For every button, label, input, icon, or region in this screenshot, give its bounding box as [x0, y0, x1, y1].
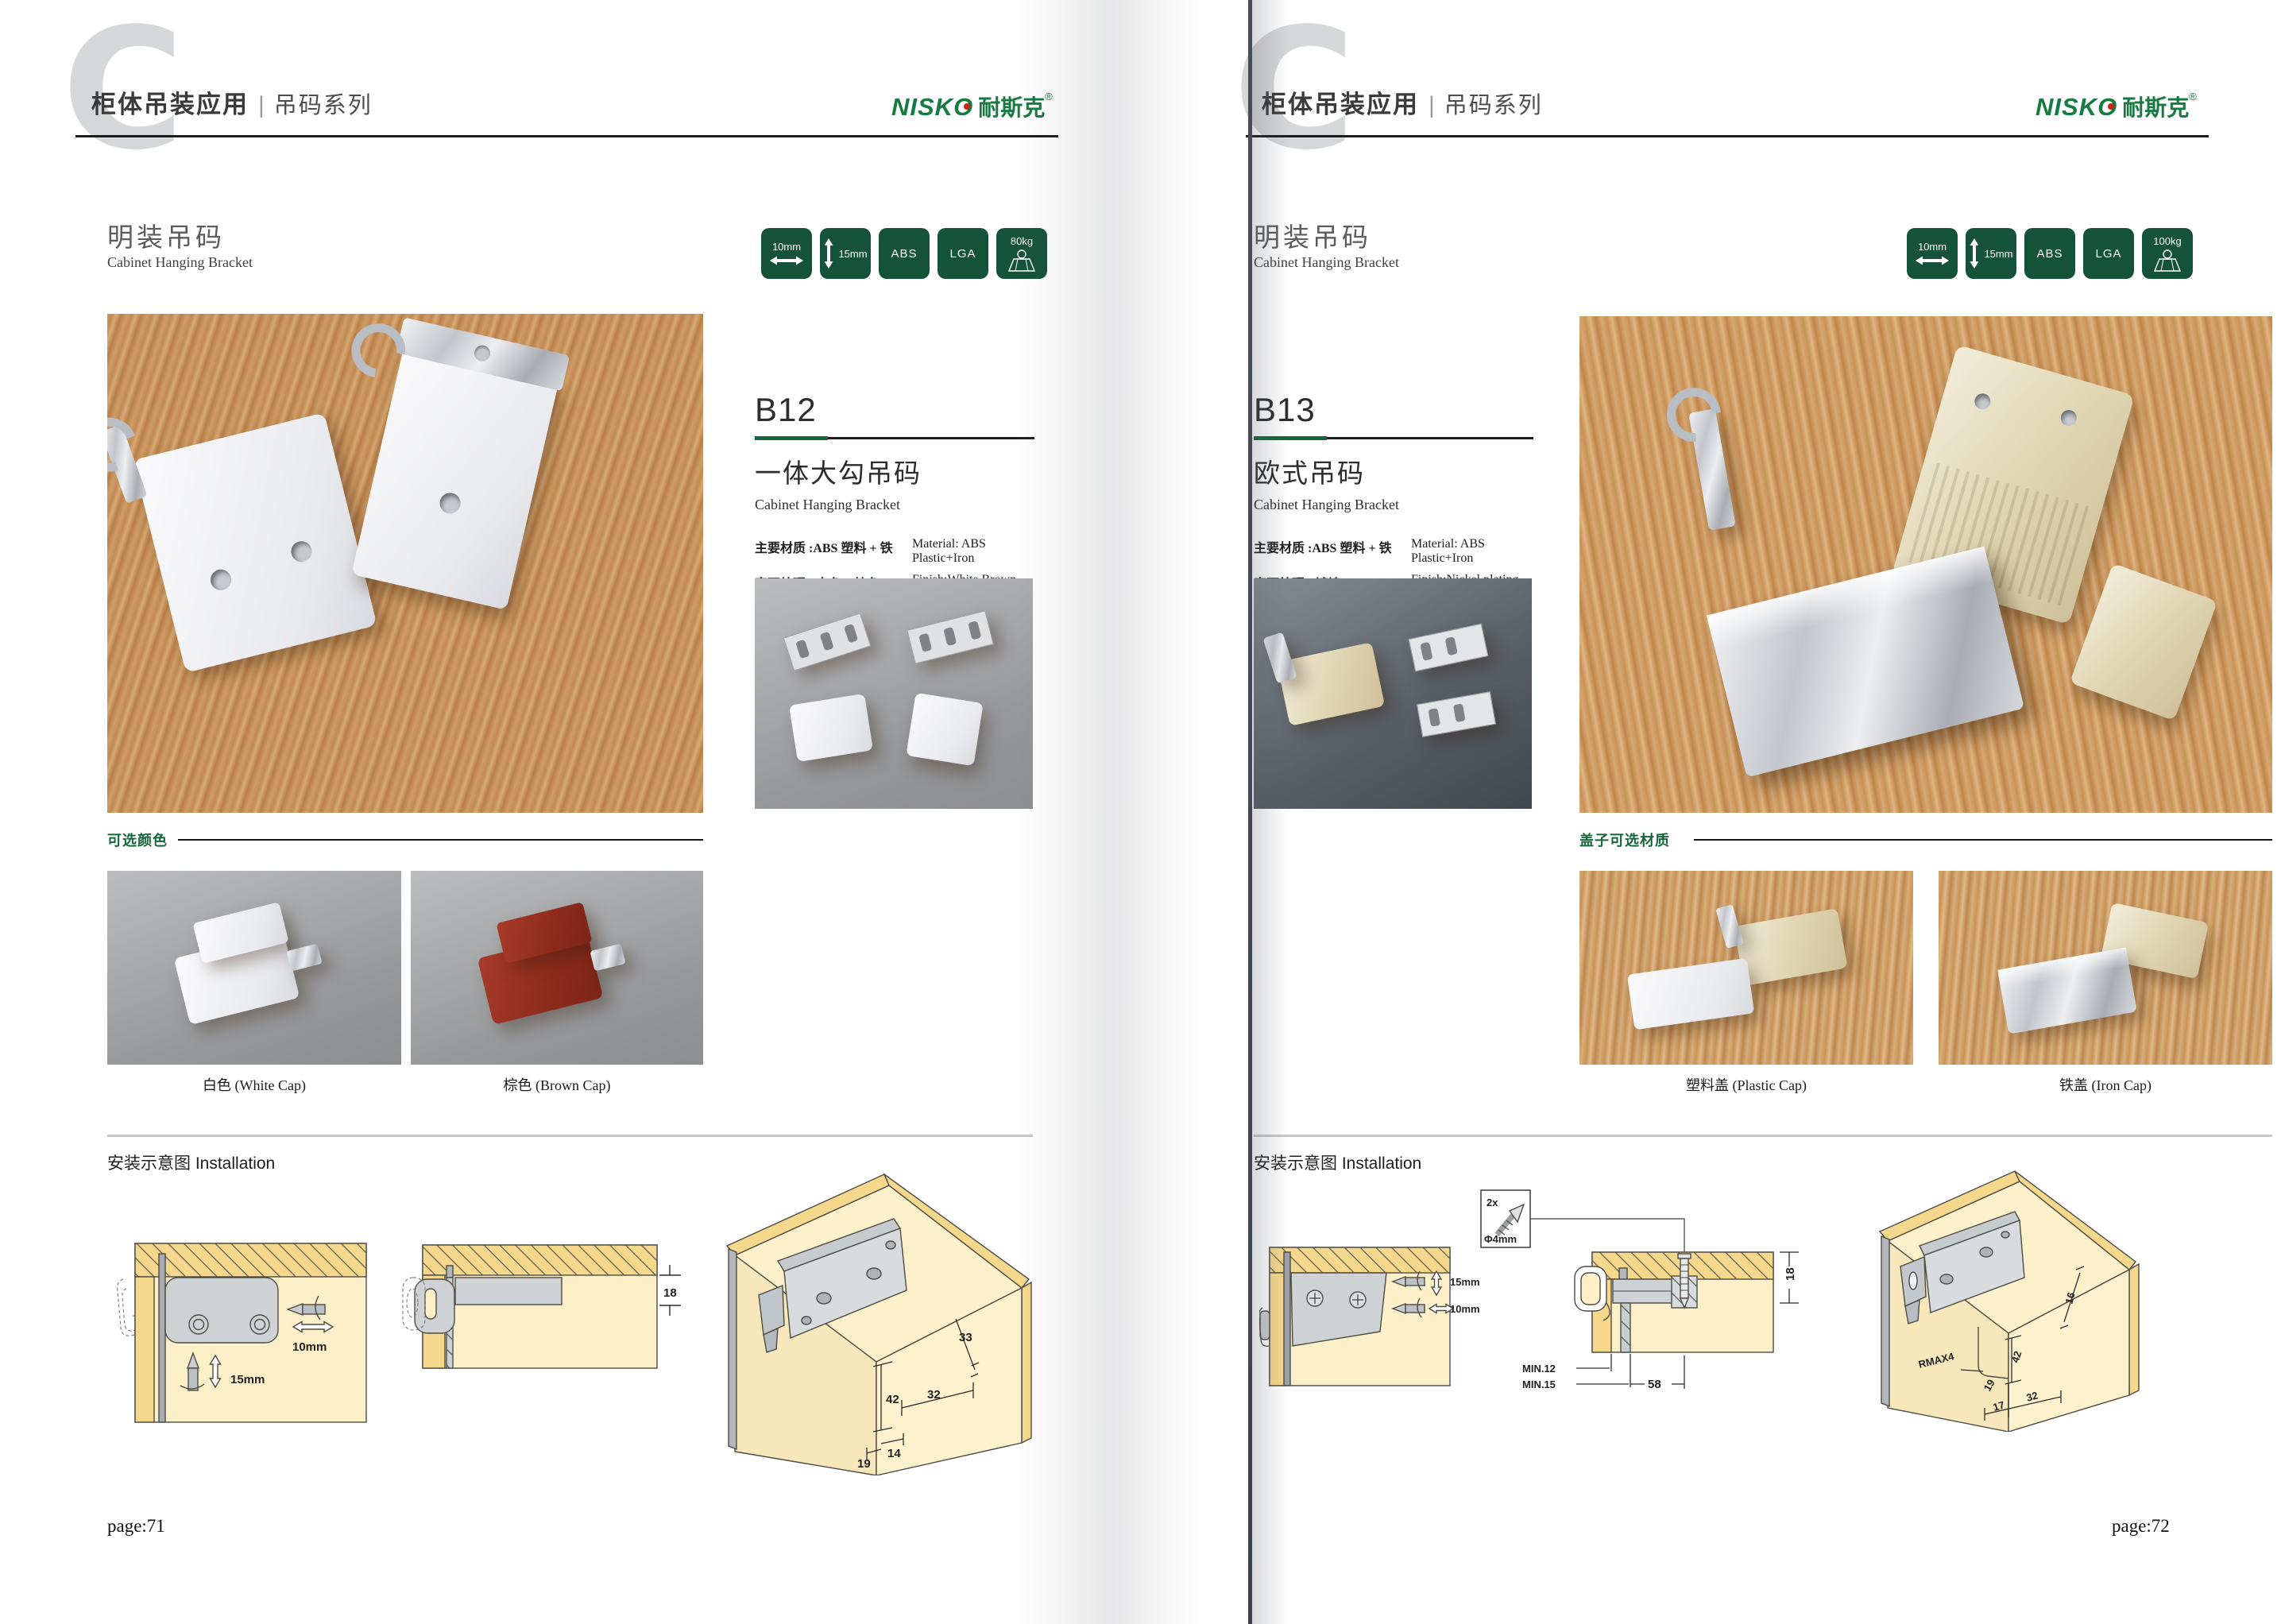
dimension-bottom: [1576, 1354, 1684, 1389]
dim-min15: MIN.15: [1522, 1378, 1556, 1390]
rail-slot: [1428, 708, 1440, 727]
brand-registered-mark: ®: [2189, 91, 2197, 102]
product-photo-main: [1579, 316, 2272, 813]
width-arrow-icon: [1914, 255, 1950, 266]
options-label: 盖子可选材质: [1579, 829, 1670, 850]
dim-18: 18: [1784, 1267, 1797, 1281]
dim-15mm: 15mm: [1450, 1276, 1480, 1288]
install-diagram-side: 2x Φ4mm: [1476, 1184, 1818, 1410]
mount-rail: [1417, 691, 1496, 737]
page-number: page:72: [2112, 1516, 2170, 1537]
brand-logo-cn: 耐斯克: [2122, 95, 2189, 120]
options-rule: [1694, 839, 2272, 841]
install-diagram-front: 15mm 10mm: [1259, 1233, 1482, 1396]
bracket-cream: [1277, 642, 1385, 726]
height-arrow-icon: [1969, 237, 1980, 270]
rail-slot: [1420, 642, 1432, 661]
model-rule: [1254, 437, 1533, 439]
bracket-cream-small: [2070, 563, 2217, 721]
brand-logo-latin: NISKO: [2036, 93, 2117, 122]
header-divider: |: [1429, 92, 1435, 119]
badge-cert: LGA: [2083, 228, 2134, 279]
spec-row-material: 主要材质 :ABS 塑料 + 铁 Material: ABS Plastic+I…: [1254, 537, 1533, 566]
badge-material-label: ABS: [2036, 247, 2063, 261]
book-fold-inner-shadow: [1252, 0, 1289, 1624]
badge-height-label: 15mm: [1984, 248, 2012, 260]
spec-material-en: Material: ABS Plastic+Iron: [1411, 537, 1533, 566]
product-name-en: Cabinet Hanging Bracket: [1254, 497, 1533, 513]
screw-hole: [1973, 392, 1993, 412]
model-number: B13: [1254, 391, 1533, 429]
option-caption-plastic: 塑料盖 (Plastic Cap): [1579, 1074, 1913, 1095]
badge-material: ABS: [2024, 228, 2075, 279]
product-photo-parts: [1254, 578, 1532, 809]
rail-slot: [1445, 636, 1458, 655]
option-photo-iron: [1939, 871, 2272, 1065]
load-capacity-icon: [2149, 249, 2186, 272]
iron-cap: [1997, 947, 2137, 1034]
badge-load-label: 100kg: [2153, 235, 2181, 247]
screw-diameter: Φ4mm: [1484, 1233, 1517, 1245]
cover-highlight: [1997, 947, 2129, 988]
badge-width-label: 10mm: [1918, 241, 1947, 253]
install-diagram-perspective: 16 42 RMAX4 19 17 32: [1867, 1170, 2145, 1432]
dim-min12: MIN.12: [1522, 1363, 1556, 1375]
brand-logo-text: NISKO: [2036, 93, 2117, 121]
screw-qty: 2x: [1487, 1197, 1498, 1208]
screw-spec-box: 2x Φ4mm: [1481, 1190, 1530, 1247]
mount-rail: [1409, 624, 1489, 672]
plastic-cap-bracket: [1734, 908, 1847, 986]
dim-58: 58: [1648, 1378, 1661, 1391]
white-cap: [1627, 958, 1754, 1030]
screw-hole: [2059, 408, 2078, 428]
product-name-cn: 欧式吊码: [1254, 452, 1533, 490]
rail-slot: [1453, 703, 1466, 722]
badge-width: 10mm: [1907, 228, 1958, 279]
spec-badges: 10mm 15mm ABS LGA 100kg: [1907, 228, 2193, 279]
cover-highlight: [1707, 547, 1993, 652]
nickel-cover: [1707, 547, 2024, 778]
page-header: 柜体吊装应用 | 吊码系列: [1262, 84, 1543, 120]
product-info: B13 欧式吊码 Cabinet Hanging Bracket 主要材质 :A…: [1254, 391, 1533, 599]
option-caption-iron: 铁盖 (Iron Cap): [1939, 1074, 2272, 1095]
option-photo-plastic: [1579, 871, 1913, 1065]
dim-10mm: 10mm: [1450, 1303, 1480, 1315]
header-series: 吊码系列: [1444, 87, 1543, 120]
installation-rule: [1254, 1135, 2272, 1137]
badge-cert-label: LGA: [2095, 247, 2121, 261]
wall-rail: [1881, 1236, 1889, 1406]
header-underline: [1246, 135, 2209, 137]
catalog-spread: C 柜体吊装应用 | 吊码系列 NISKO耐斯克® 明装吊码 Cabinet H…: [0, 0, 2281, 1624]
brand-logo: NISKO耐斯克®: [2036, 91, 2197, 122]
badge-load: 100kg: [2142, 228, 2193, 279]
badge-height: 15mm: [1966, 228, 2016, 279]
book-fold-shadow: [1017, 0, 1249, 1624]
